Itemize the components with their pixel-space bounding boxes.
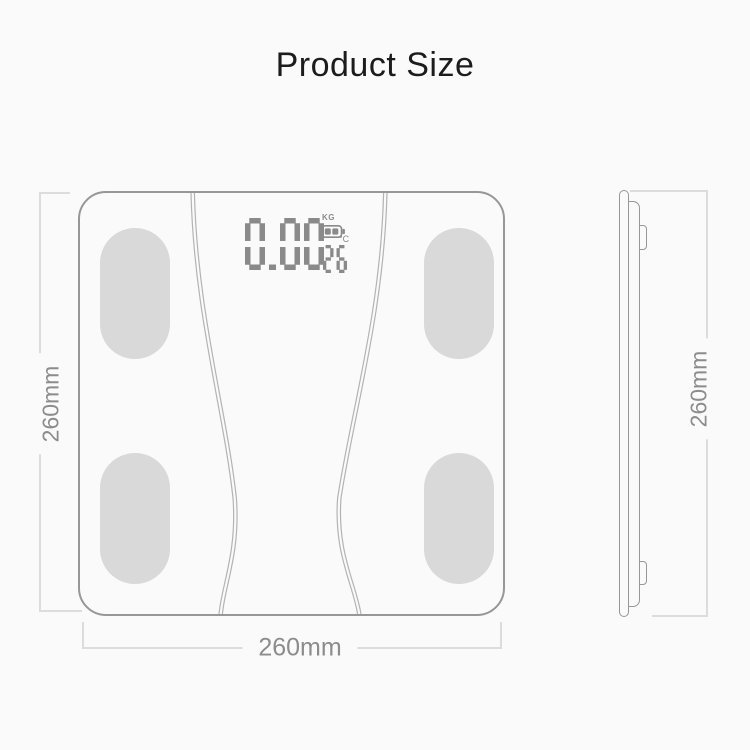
front-height-dimension-tick-top bbox=[39, 192, 70, 194]
electrode-pad-bottom-right bbox=[424, 453, 494, 584]
electrode-pad-top-left bbox=[100, 228, 170, 359]
weight-unit-label: KG bbox=[322, 213, 335, 222]
electrode-pad-bottom-left bbox=[100, 453, 170, 584]
temperature-unit-label: °C bbox=[339, 234, 349, 244]
front-height-label: 260mm bbox=[38, 354, 65, 455]
side-height-label: 260mm bbox=[686, 339, 713, 440]
front-width-dimension-tick-left bbox=[82, 622, 84, 648]
electrode-pad-top-right bbox=[424, 228, 494, 359]
lcd-weight-value bbox=[245, 218, 330, 270]
front-height-dimension-tick-bottom bbox=[39, 610, 82, 612]
front-width-dimension-tick-right bbox=[500, 622, 502, 648]
page-title: Product Size bbox=[0, 46, 750, 85]
product-size-diagram: Product Size KG °C 260mm 260mm bbox=[0, 0, 750, 750]
side-glass-panel bbox=[619, 190, 629, 617]
side-height-dimension-tick-top bbox=[630, 190, 707, 192]
front-width-label: 260mm bbox=[242, 634, 357, 663]
side-height-dimension-tick-bottom bbox=[652, 615, 707, 617]
lcd-temperature-value bbox=[323, 245, 347, 273]
